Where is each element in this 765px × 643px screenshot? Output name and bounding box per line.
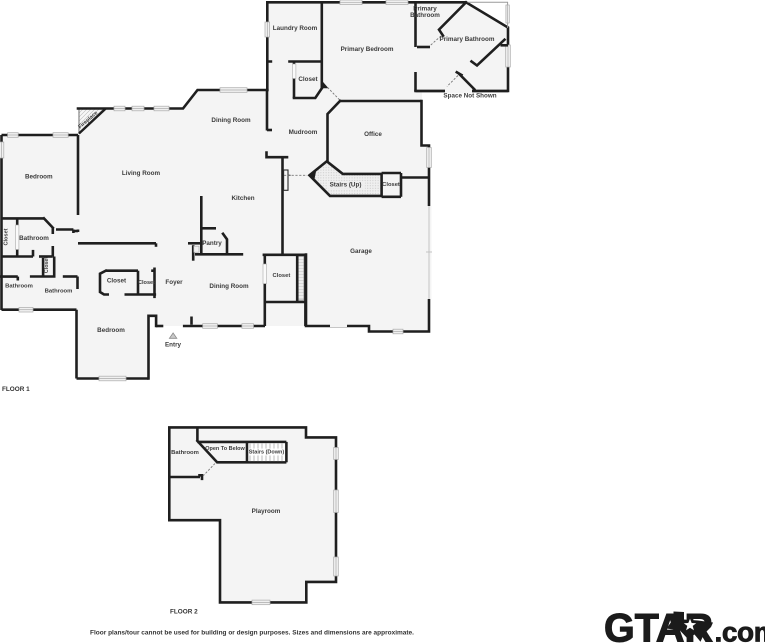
svg-text:Stairs (Up): Stairs (Up) <box>330 181 362 188</box>
svg-text:Dining Room: Dining Room <box>211 117 251 124</box>
svg-text:Floor plans/tour cannot be use: Floor plans/tour cannot be used for buil… <box>90 630 414 637</box>
svg-text:Open To Below: Open To Below <box>205 446 245 452</box>
svg-text:Mudroom: Mudroom <box>289 129 318 136</box>
svg-text:Closet: Closet <box>4 228 10 245</box>
svg-text:Laundry Room: Laundry Room <box>273 25 318 32</box>
svg-text:Bathroom: Bathroom <box>410 12 440 19</box>
svg-text:Closet: Closet <box>107 278 127 285</box>
svg-text:Kitchen: Kitchen <box>231 195 254 202</box>
svg-text:Office: Office <box>364 131 382 138</box>
svg-text:Bedroom: Bedroom <box>25 174 53 181</box>
svg-text:Dining Room: Dining Room <box>209 283 249 290</box>
svg-text:Space Not Shown: Space Not Shown <box>443 92 496 99</box>
svg-text:Garage: Garage <box>350 248 372 255</box>
svg-text:Bathroom: Bathroom <box>19 235 49 242</box>
svg-text:Entry: Entry <box>165 342 182 349</box>
svg-text:Primary Bathroom: Primary Bathroom <box>440 36 495 43</box>
svg-text:Primary Bedroom: Primary Bedroom <box>341 46 394 53</box>
svg-text:Bedroom: Bedroom <box>97 327 125 334</box>
svg-text:Playroom: Playroom <box>252 508 281 515</box>
svg-text:Pantry: Pantry <box>202 240 222 247</box>
svg-text:Stairs (Down): Stairs (Down) <box>249 449 285 455</box>
svg-text:Closet: Closet <box>273 273 291 279</box>
svg-text:.com: .com <box>715 617 765 643</box>
svg-text:Foyer: Foyer <box>165 279 183 286</box>
svg-text:Bathroom: Bathroom <box>171 450 199 456</box>
svg-text:FLOOR 1: FLOOR 1 <box>2 386 30 393</box>
svg-text:Living Room: Living Room <box>122 170 161 177</box>
svg-text:Closet: Closet <box>44 257 50 273</box>
svg-text:Closet: Closet <box>298 76 318 83</box>
svg-text:Bathroom: Bathroom <box>5 284 33 290</box>
svg-text:Closet: Closet <box>382 182 400 188</box>
svg-text:FLOOR 2: FLOOR 2 <box>170 609 198 616</box>
svg-text:Bathroom: Bathroom <box>45 289 73 295</box>
svg-text:Closet: Closet <box>138 280 155 286</box>
